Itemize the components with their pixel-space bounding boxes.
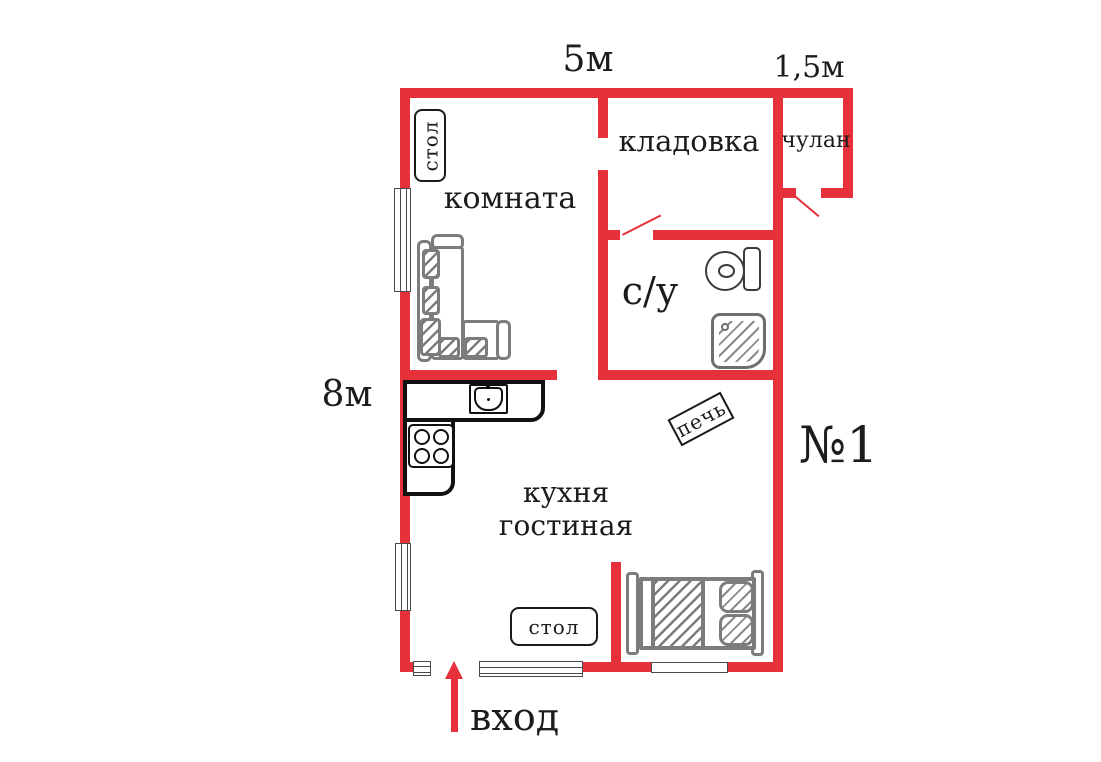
dim-top-right-label: 1,5м bbox=[773, 53, 844, 83]
heater-icon: печь bbox=[667, 392, 734, 447]
window-pane-line bbox=[414, 666, 430, 673]
floor-plan: печь стол стол 5м 1,5м 8м комната кладов… bbox=[0, 0, 1101, 762]
kitchen-label: кухня гостиная bbox=[499, 479, 633, 540]
sink-faucet bbox=[486, 381, 490, 387]
toilet-tank bbox=[743, 247, 761, 291]
wall-right bbox=[773, 88, 783, 672]
window bbox=[413, 661, 431, 676]
closet-door-swing-line bbox=[794, 195, 820, 217]
sofa-cushion bbox=[422, 286, 440, 315]
cooktop-icon bbox=[408, 424, 454, 468]
window-pane-line bbox=[401, 544, 408, 610]
sofa-cushion bbox=[422, 249, 440, 279]
window-pane-line bbox=[400, 189, 407, 291]
kitchen-label-line2: гостиная bbox=[499, 512, 633, 540]
entrance-label: вход bbox=[470, 698, 559, 736]
entrance-arrow-shaft bbox=[451, 678, 458, 732]
wall-room-bottom bbox=[400, 370, 557, 380]
wall-bed-partition bbox=[611, 562, 621, 662]
burner bbox=[414, 429, 430, 445]
bed-footboard bbox=[626, 572, 639, 655]
wall-bottom-segment bbox=[727, 662, 783, 672]
dining-table-label: стол bbox=[528, 615, 579, 639]
shower-tray-icon bbox=[711, 313, 766, 369]
sink-icon bbox=[469, 384, 508, 414]
toilet-icon bbox=[705, 247, 765, 295]
wall-bathroom-top-stub bbox=[608, 230, 620, 240]
wall-bathroom-top bbox=[653, 230, 773, 240]
unit-number-label: №1 bbox=[799, 420, 878, 470]
bed-pillow bbox=[719, 614, 754, 646]
wall-top bbox=[400, 88, 853, 98]
entrance-arrow-icon bbox=[445, 661, 463, 679]
toilet-bowl-inner bbox=[718, 264, 735, 278]
window bbox=[395, 543, 411, 611]
dining-table-icon: стол bbox=[510, 607, 598, 646]
dim-top-label: 5м bbox=[563, 42, 614, 78]
wall-storage-bathroom-left bbox=[598, 170, 608, 380]
window bbox=[479, 661, 583, 677]
burner bbox=[433, 448, 449, 464]
dim-left-label: 8м bbox=[322, 377, 373, 413]
wall-bottom-segment bbox=[583, 662, 653, 672]
desk-label: стол bbox=[418, 120, 442, 171]
bed-pillow bbox=[719, 581, 754, 613]
closet-label: чулан bbox=[781, 130, 850, 152]
window bbox=[394, 188, 411, 292]
window-pane-line bbox=[480, 667, 582, 674]
shower-drain bbox=[721, 323, 729, 331]
sofa-right-armrest bbox=[496, 320, 511, 360]
desk-icon: стол bbox=[414, 109, 446, 182]
sink-drain bbox=[487, 398, 490, 401]
burner bbox=[414, 448, 430, 464]
burner bbox=[433, 429, 449, 445]
sofa-cushion bbox=[464, 337, 488, 358]
bathroom-label: с/у bbox=[622, 272, 678, 310]
bed-blanket bbox=[651, 577, 705, 650]
room-label: комната bbox=[444, 184, 577, 214]
heater-label: печь bbox=[672, 396, 730, 442]
storage-label: кладовка bbox=[619, 127, 760, 156]
wall-closet-bottom-segment bbox=[821, 188, 853, 198]
wall-bathroom-bottom bbox=[598, 370, 783, 380]
kitchen-label-line1: кухня bbox=[499, 479, 633, 507]
sofa-cushion bbox=[438, 337, 460, 358]
window bbox=[651, 662, 728, 673]
wall-storage-left-upper bbox=[598, 98, 608, 138]
